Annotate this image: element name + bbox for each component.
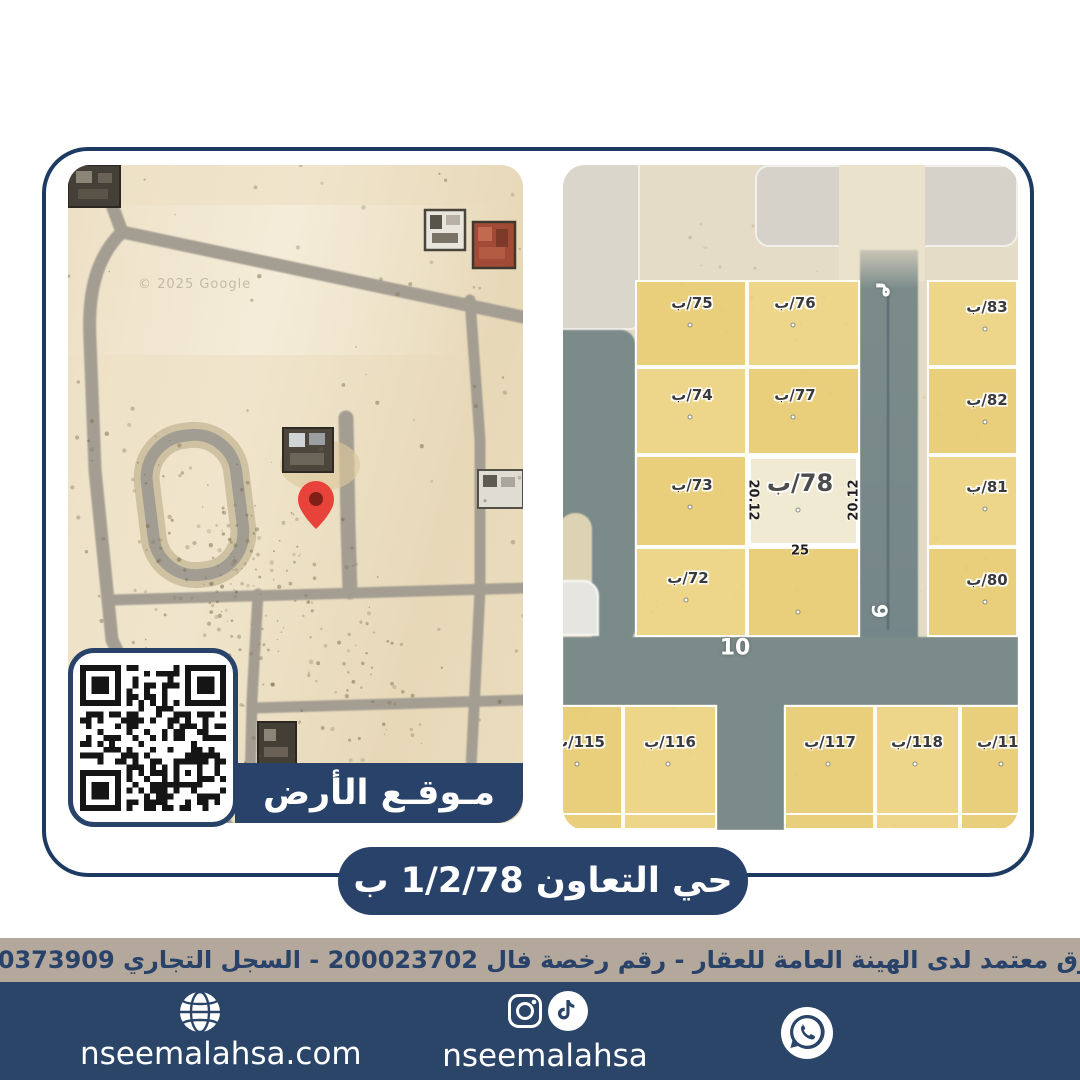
street-name-label: م <box>876 282 901 298</box>
plot-number-label: 73/ب <box>671 476 712 494</box>
parcel-map-panel: 75/ب76/ب83/ب74/ب77/ب82/ب73/ب78/ب81/ب72/ب… <box>563 165 1018 830</box>
plot-subdivision-line <box>784 813 1018 815</box>
flyer-canvas: © 2025 Google 75/ب76/ب83/ب74/ب77/ب82/ب73… <box>0 0 1080 1080</box>
location-label-band: مـوقـع الأرض <box>235 763 523 823</box>
plot-number-label: 80/ب <box>966 571 1007 589</box>
license-bar: مسوق معتمد لدى الهينة العامة للعقار - رق… <box>0 938 1080 982</box>
district-title: حي التعاون 1/2/78 ب <box>353 861 732 901</box>
plot-number-label: 77/ب <box>774 386 815 404</box>
parcel-plot <box>635 367 747 455</box>
whatsapp-icon <box>780 1006 834 1060</box>
building-centre <box>283 428 333 472</box>
street-name-label: 9 <box>867 604 891 619</box>
plot-marker-dot <box>684 598 689 603</box>
plot-number-label: 72/ب <box>667 569 708 587</box>
parcel-plot <box>927 455 1018 547</box>
parcel-plot <box>927 547 1018 637</box>
plot-marker-dot <box>688 323 693 328</box>
parcel-plot <box>784 705 875 830</box>
plot-marker-dot <box>791 415 796 420</box>
location-label: مـوقـع الأرض <box>263 773 495 813</box>
plot-marker-dot <box>796 508 801 513</box>
tiktok-icon <box>548 991 588 1031</box>
street-name-label: 10 <box>720 636 751 661</box>
plot-marker-dot <box>796 610 801 615</box>
title-pill: حي التعاون 1/2/78 ب <box>338 847 748 915</box>
parcel-plot <box>635 547 747 637</box>
plot-marker-dot <box>826 762 831 767</box>
instagram-icon <box>506 992 544 1030</box>
parcel-plot <box>747 547 860 637</box>
plot-number-label: 119/ب <box>977 733 1018 751</box>
plot-dimension-label: 20.12 <box>746 479 761 520</box>
plot-number-label: 82/ب <box>966 391 1007 409</box>
building-top-left <box>68 165 120 207</box>
plot-marker-dot <box>666 762 671 767</box>
plot-dimension-label: 20.12 <box>847 479 862 520</box>
footer: nseemalahsa.com nseemalahsa 0594977277 0… <box>0 982 1080 1080</box>
plot-number-label: 115/ب <box>563 733 605 751</box>
plot-number-label: 81/ب <box>966 478 1007 496</box>
plot-number-label: 83/ب <box>966 298 1007 316</box>
loop-road <box>142 430 248 580</box>
plot-marker-dot <box>688 415 693 420</box>
website-text[interactable]: nseemalahsa.com <box>80 1036 320 1072</box>
parcel-plot <box>563 705 623 830</box>
plot-number-label: 76/ب <box>774 294 815 312</box>
map-watermark: © 2025 Google <box>138 277 251 292</box>
parcel-plot <box>927 367 1018 455</box>
parcel-plot <box>875 705 960 830</box>
parcel-plot <box>960 705 1018 830</box>
parcel-plot <box>635 455 747 547</box>
globe-icon <box>178 990 222 1034</box>
plot-subdivision-line <box>563 813 717 815</box>
plot-dimension-label: 25 <box>791 544 809 559</box>
qr-code <box>68 648 238 827</box>
plot-number-label: 116/ب <box>644 733 696 751</box>
parcel-plot <box>747 367 860 455</box>
parcel-plot <box>927 280 1018 367</box>
parcel-plot <box>623 705 717 830</box>
plot-number-label: 74/ب <box>671 386 712 404</box>
plot-marker-dot <box>983 600 988 605</box>
plot-number-label: 78/ب <box>767 469 833 497</box>
parcel-plots-layer: 75/ب76/ب83/ب74/ب77/ب82/ب73/ب78/ب81/ب72/ب… <box>563 165 1018 830</box>
plot-marker-dot <box>983 327 988 332</box>
plot-marker-dot <box>913 762 918 767</box>
building-red-roof <box>473 222 515 268</box>
plot-marker-dot <box>983 507 988 512</box>
social-handle-text[interactable]: nseemalahsa <box>425 1038 665 1074</box>
location-pin-icon <box>298 481 334 529</box>
plot-marker-dot <box>688 505 693 510</box>
plot-number-label: 75/ب <box>671 294 712 312</box>
plot-marker-dot <box>999 762 1004 767</box>
building-white <box>425 210 465 250</box>
plot-number-label: 117/ب <box>804 733 856 751</box>
plot-marker-dot <box>791 323 796 328</box>
qr-code-pattern <box>80 665 226 811</box>
plot-marker-dot <box>575 762 580 767</box>
plot-number-label: 118/ب <box>891 733 943 751</box>
plot-marker-dot <box>983 420 988 425</box>
license-text: مسوق معتمد لدى الهينة العامة للعقار - رق… <box>0 946 1080 974</box>
